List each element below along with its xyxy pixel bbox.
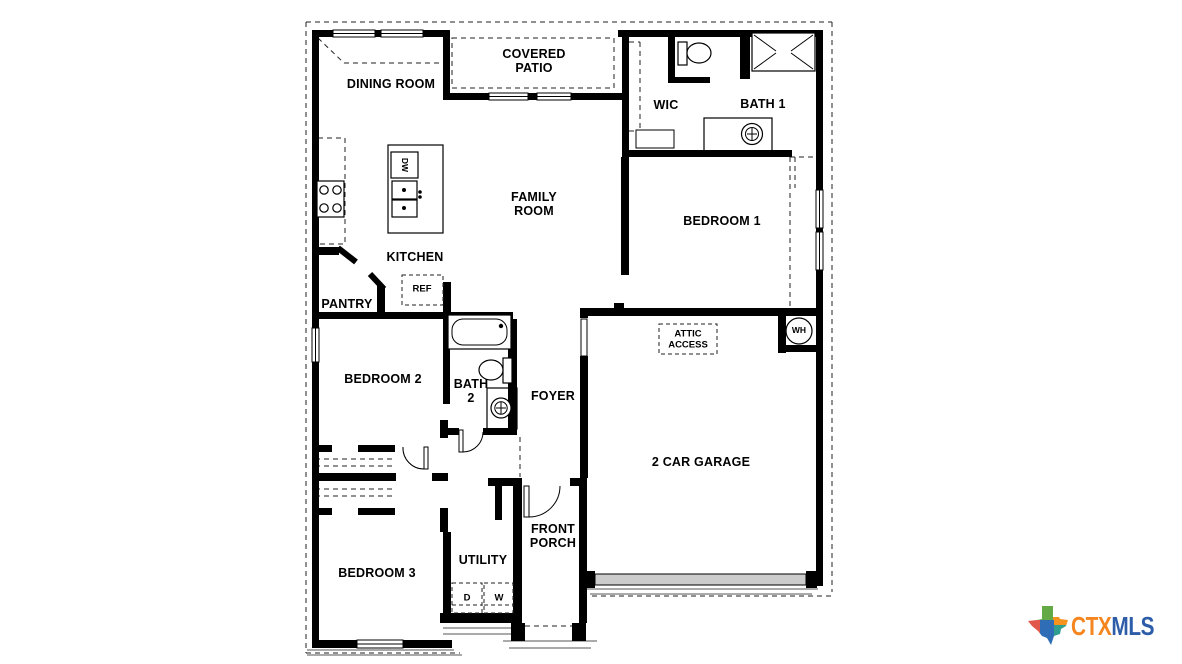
room-label-bath-1: BATH 1: [740, 97, 785, 111]
logo-ctx: CTX: [1071, 613, 1111, 639]
fixture-label-water-heater: WH: [792, 326, 806, 336]
fixture-label-dishwasher: DW: [399, 158, 409, 172]
room-label-bedroom-2: BEDROOM 2: [344, 372, 422, 386]
room-label-front-porch: FRONT PORCH: [530, 522, 576, 550]
texas-icon: [1028, 604, 1068, 648]
ctxmls-logo-text: CTXMLS: [1071, 613, 1154, 639]
kitchen-island: [388, 145, 443, 233]
fixture-label-washer: W: [495, 594, 504, 605]
window-icon: [489, 93, 528, 100]
toilet-icon: [678, 42, 711, 65]
room-label-foyer: FOYER: [531, 389, 575, 403]
double-sink-icon: [392, 181, 421, 217]
fixture-label-attic-access: ATTIC ACCESS: [668, 329, 708, 350]
pantry-doors: [338, 248, 384, 289]
shower-icon: [752, 33, 815, 71]
room-label-covered-patio: COVERED PATIO: [502, 47, 565, 75]
room-label-bedroom-1: BEDROOM 1: [683, 214, 761, 228]
room-label-kitchen: KITCHEN: [387, 250, 444, 264]
walls: [312, 30, 823, 648]
roofline-dashed: [306, 22, 832, 653]
room-label-bath-2: BATH 2: [454, 377, 489, 405]
window-icon: [333, 30, 375, 37]
window-icon: [357, 640, 403, 648]
room-label-family-room: FAMILY ROOM: [511, 190, 557, 218]
sink-vanity-icon: [704, 118, 772, 151]
room-label-utility: UTILITY: [459, 553, 508, 567]
room-label-pantry: PANTRY: [321, 297, 372, 311]
bathtub-icon: [448, 315, 511, 349]
floor-plan-drawing: [0, 0, 1182, 664]
room-label-wic: WIC: [654, 98, 679, 112]
window-icon: [312, 328, 319, 362]
logo-mls: MLS: [1111, 613, 1154, 639]
room-label-garage: 2 CAR GARAGE: [652, 455, 750, 469]
room-label-bedroom-3: BEDROOM 3: [338, 566, 416, 580]
window-icon: [816, 232, 823, 270]
fixture-label-refrigerator: REF: [413, 285, 432, 296]
window-icon: [816, 190, 823, 228]
room-label-dining-room: DINING ROOM: [347, 77, 435, 91]
window-icon: [381, 30, 423, 37]
windows: [312, 30, 823, 648]
window-icon: [537, 93, 571, 100]
floor-plan: DINING ROOM COVERED PATIO WIC BATH 1 FAM…: [0, 0, 1182, 664]
ctxmls-logo: CTXMLS: [1028, 604, 1175, 648]
fixture-label-dryer: D: [464, 594, 471, 605]
wic-shelf: [636, 130, 674, 148]
stove-icon: [317, 181, 344, 217]
garage-door: [595, 574, 806, 585]
